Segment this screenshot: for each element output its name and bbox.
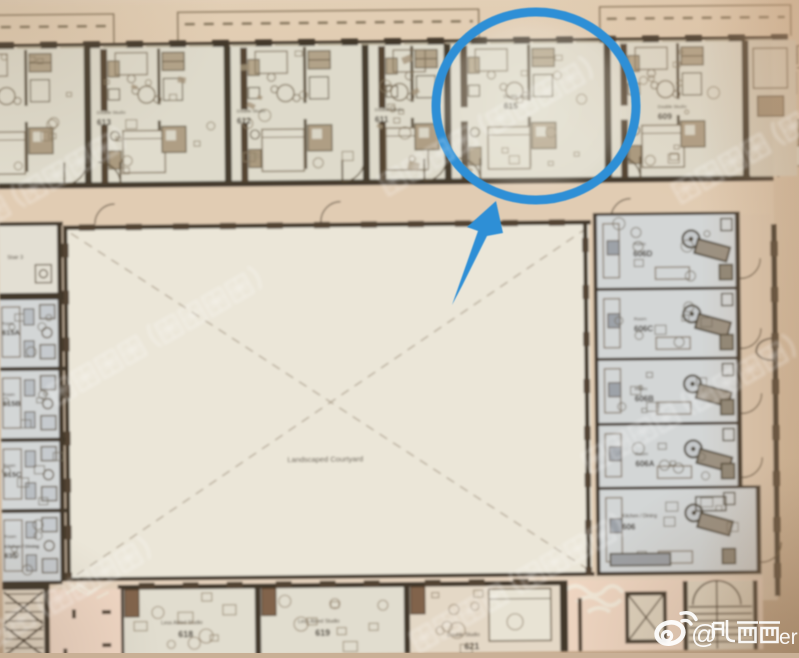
svg-text:er: er	[779, 626, 798, 649]
